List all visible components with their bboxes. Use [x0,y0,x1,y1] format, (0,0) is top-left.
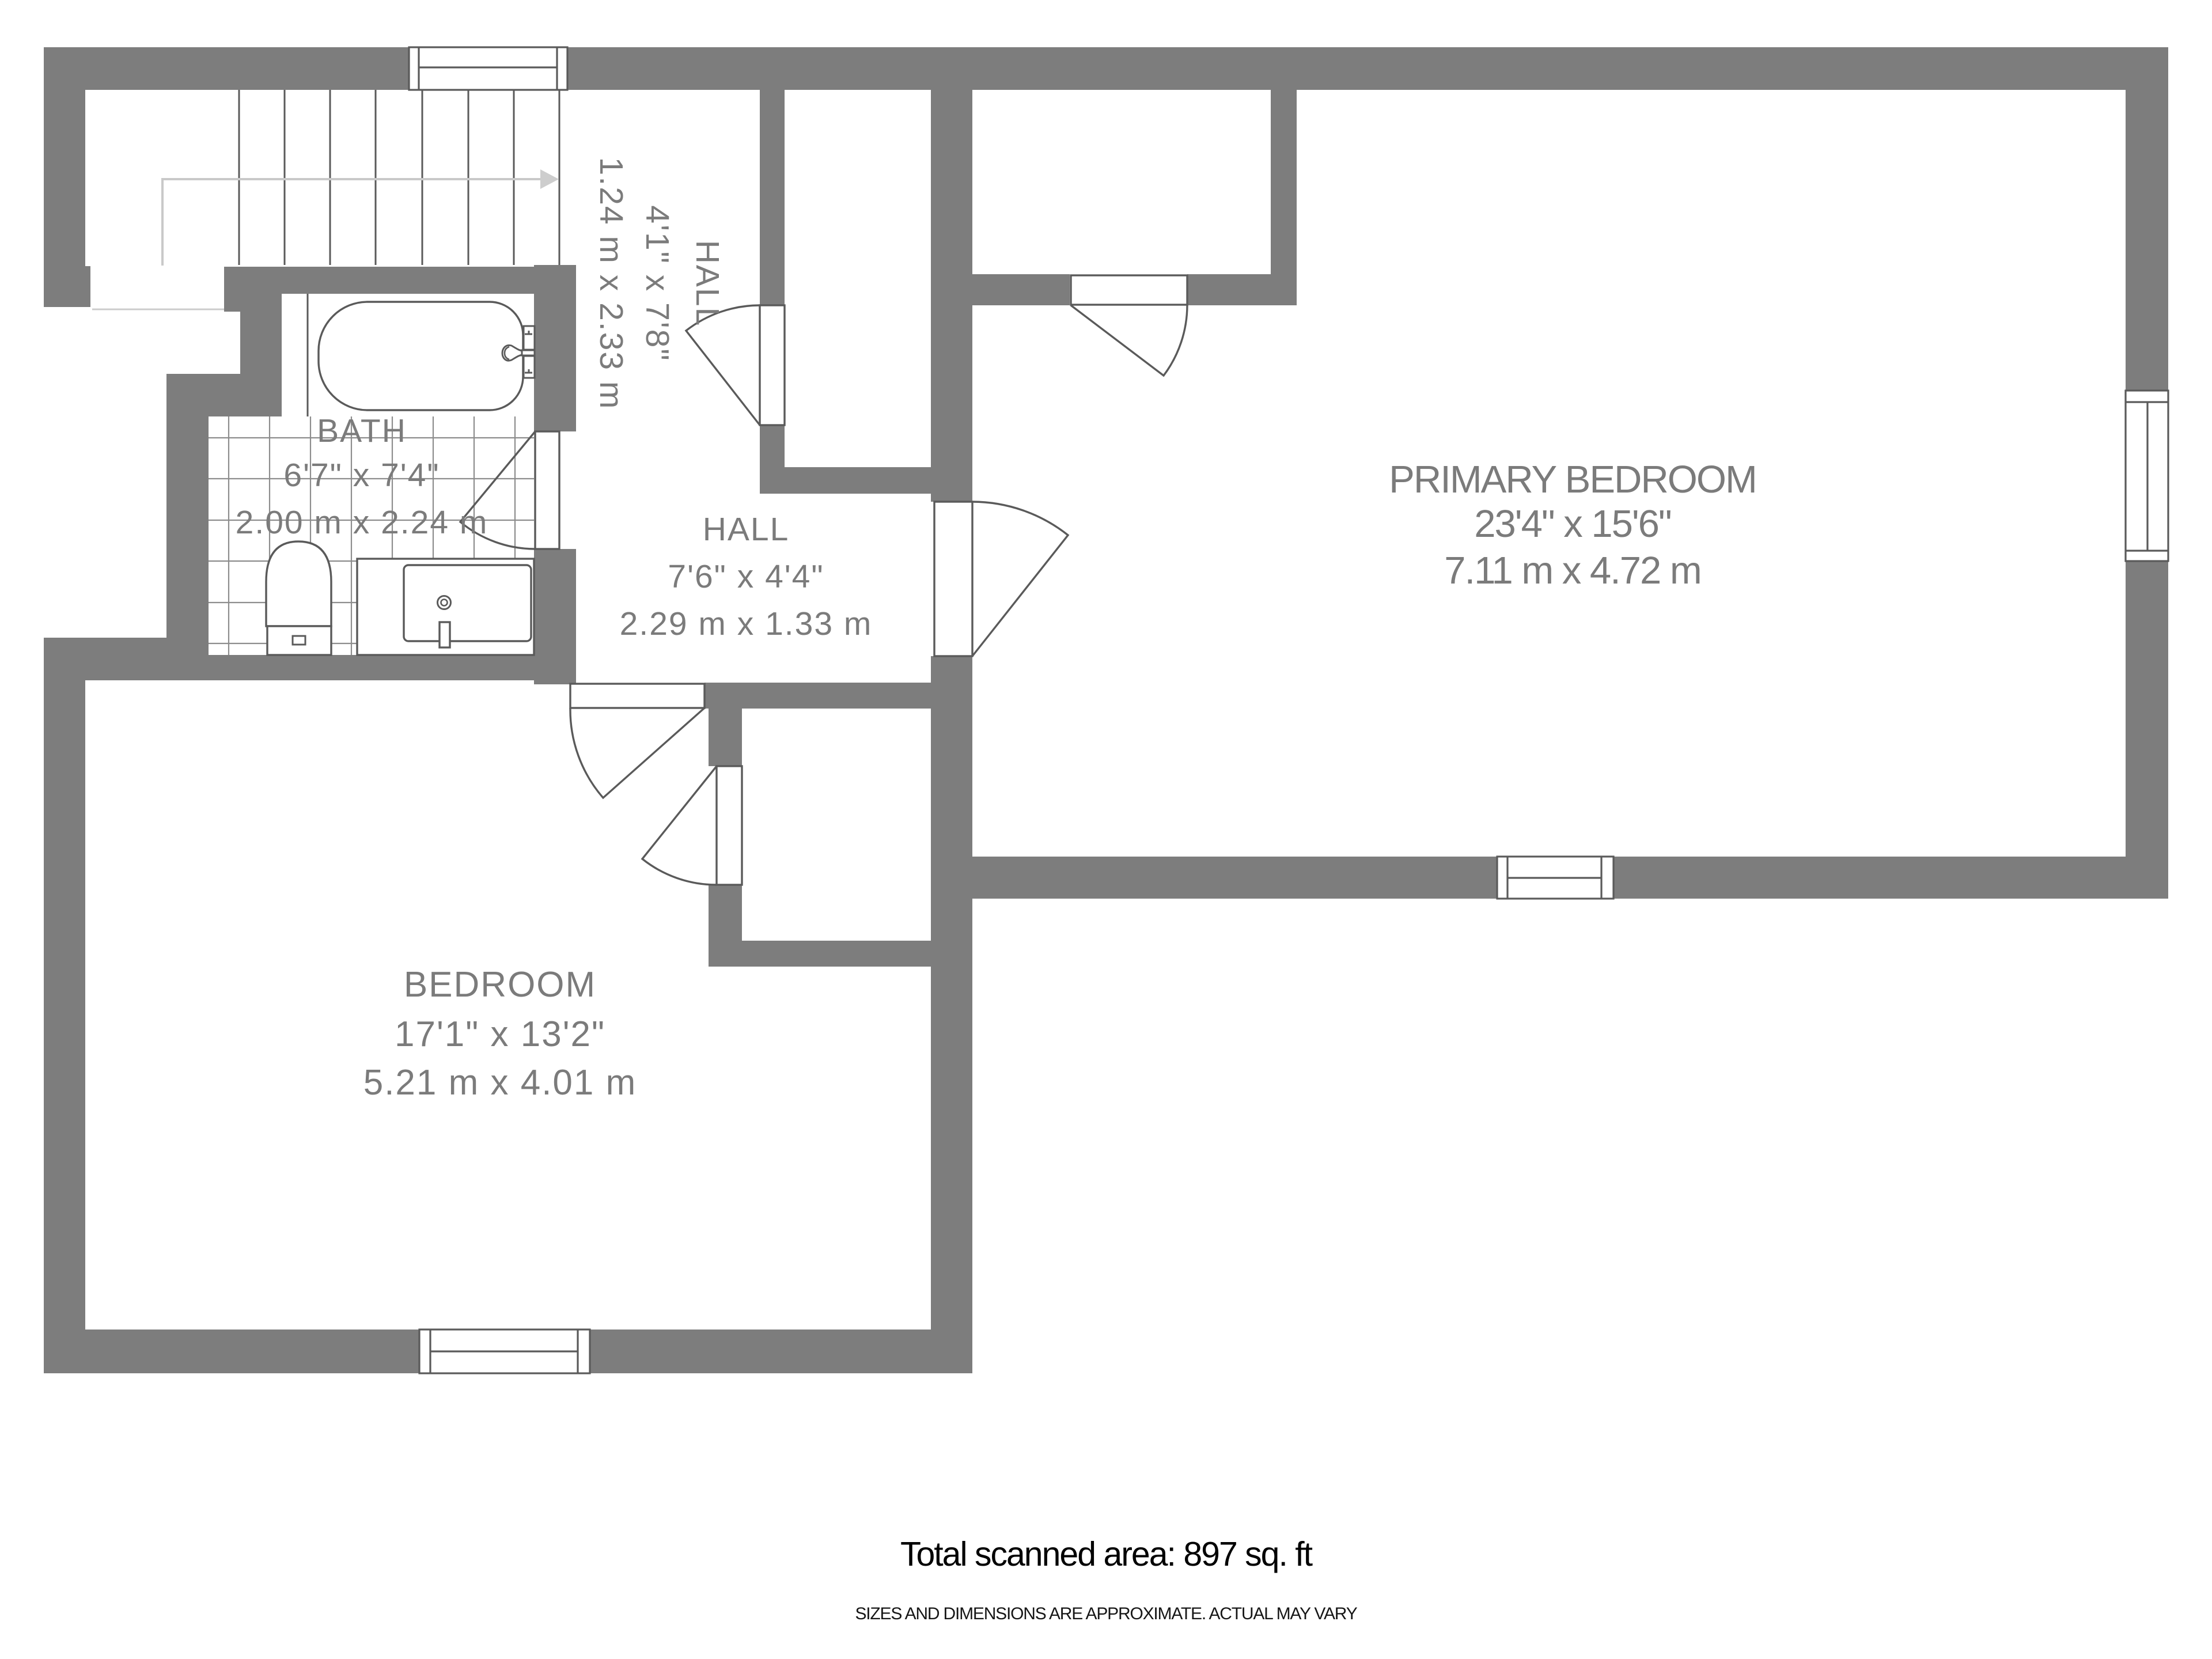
svg-text:4'1" x 7'8": 4'1" x 7'8" [639,205,676,361]
svg-text:BATH: BATH [317,412,407,449]
svg-text:6'7" x 7'4": 6'7" x 7'4" [283,457,440,494]
svg-text:1.24 m x 2.33 m: 1.24 m x 2.33 m [593,157,630,410]
svg-text:BEDROOM: BEDROOM [404,965,596,1005]
svg-text:5.21 m x 4.01 m: 5.21 m x 4.01 m [363,1063,637,1103]
svg-text:17'1" x 13'2": 17'1" x 13'2" [395,1014,605,1054]
svg-text:7'6" x 4'4": 7'6" x 4'4" [668,558,824,595]
svg-text:HALL: HALL [689,240,726,327]
svg-text:HALL: HALL [703,511,790,548]
svg-text:23'4" x 15'6": 23'4" x 15'6" [1474,502,1671,546]
svg-text:2.00 m x 2.24 m: 2.00 m x 2.24 m [236,504,488,541]
svg-text:2.29 m x 1.33 m: 2.29 m x 1.33 m [620,605,873,642]
svg-text:PRIMARY BEDROOM: PRIMARY BEDROOM [1389,458,1756,501]
svg-text:SIZES AND DIMENSIONS ARE APPRO: SIZES AND DIMENSIONS ARE APPROXIMATE. AC… [855,1604,1357,1623]
svg-text:Total scanned area: 897 sq. ft: Total scanned area: 897 sq. ft [900,1535,1313,1573]
svg-text:7.11 m x 4.72 m: 7.11 m x 4.72 m [1444,549,1700,592]
